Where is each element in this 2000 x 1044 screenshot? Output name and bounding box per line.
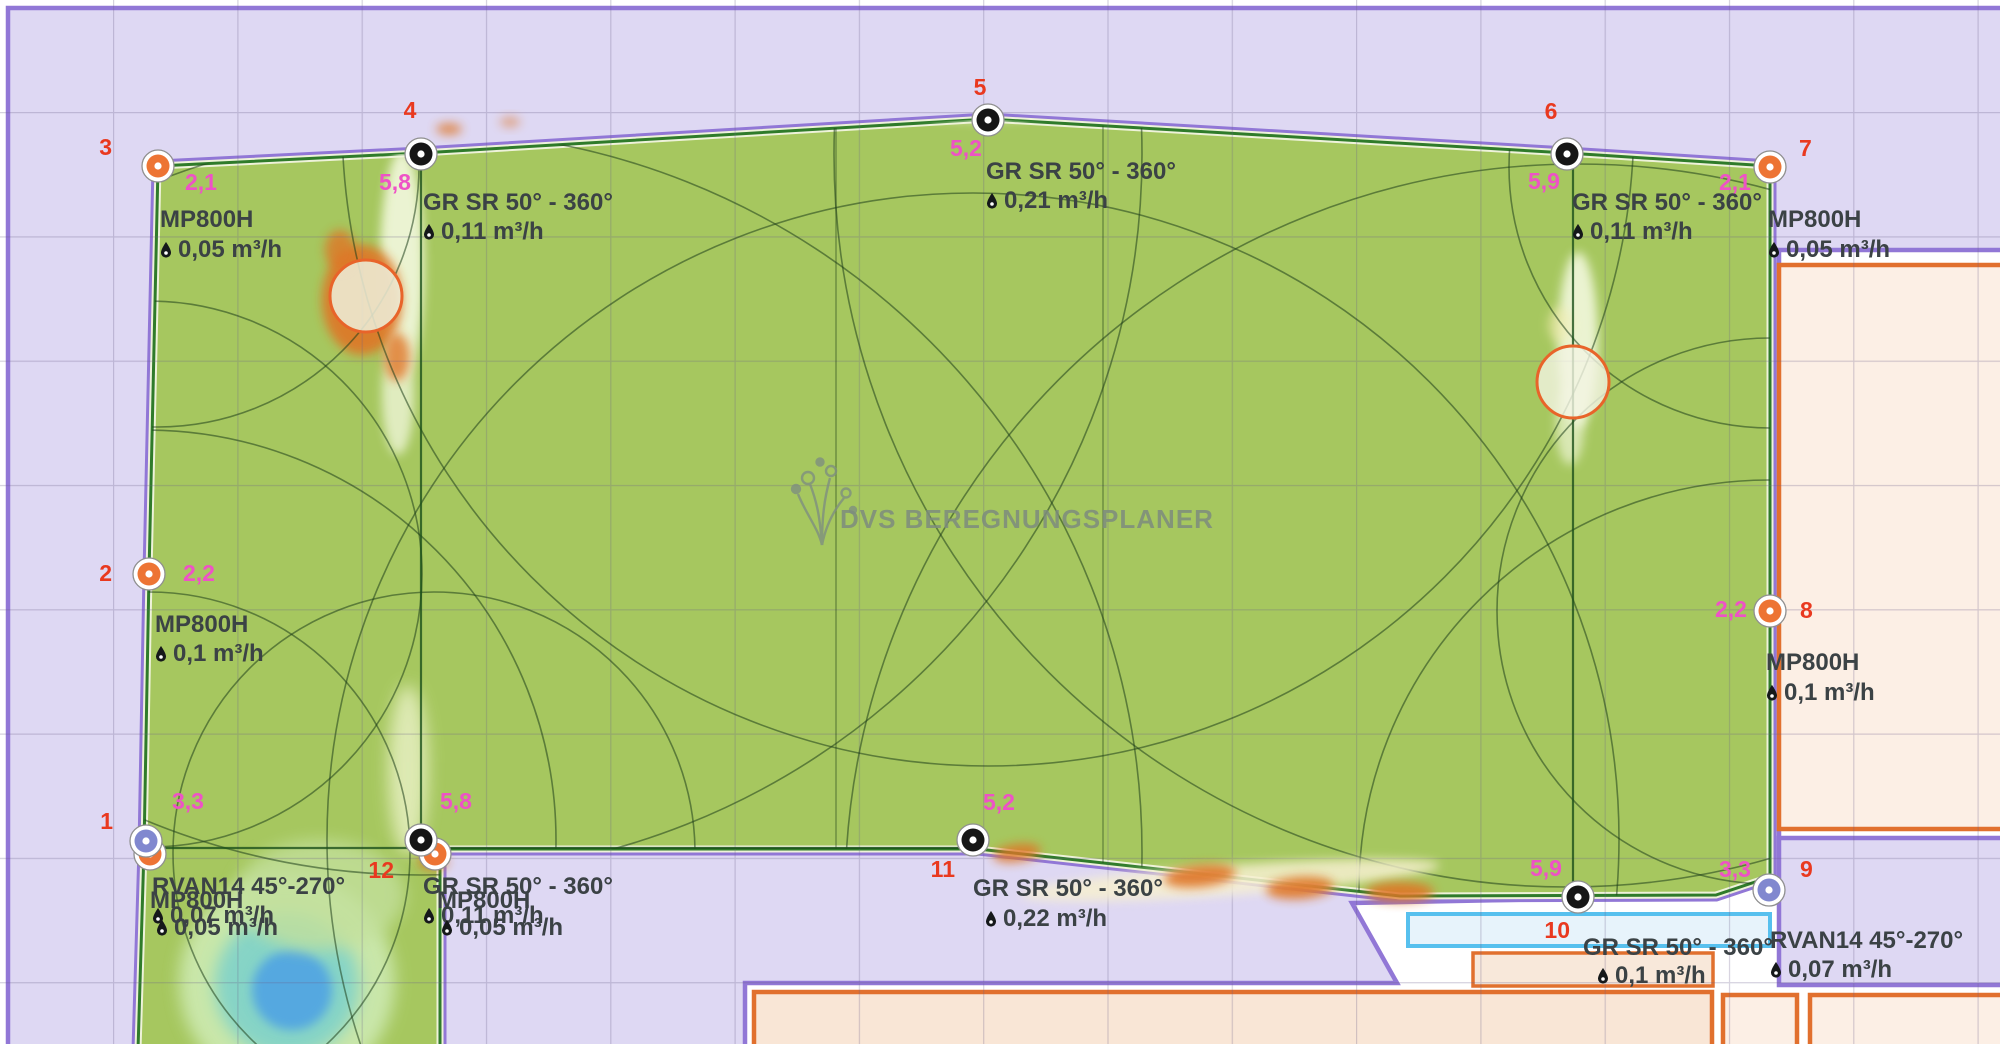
radius-label: 5,2 bbox=[983, 789, 1015, 815]
sprinkler-name: GR SR 50° - 360° bbox=[973, 875, 1163, 902]
radius-label: 2,2 bbox=[183, 560, 215, 586]
sprinkler-name: MP800H bbox=[1768, 206, 1861, 233]
radius-label: 5,2 bbox=[950, 135, 982, 161]
flow-rate: 0,11 m³/h bbox=[441, 218, 544, 245]
flow-rate: 0,11 m³/h bbox=[1590, 218, 1693, 245]
sprinkler-number: 5 bbox=[974, 74, 987, 100]
sprinkler-marker-11[interactable] bbox=[957, 824, 989, 856]
sprinkler-number: 6 bbox=[1545, 98, 1558, 124]
radius-label: 2,1 bbox=[185, 169, 217, 195]
sprinkler-number: 8 bbox=[1800, 597, 1813, 623]
sprinkler-marker-12[interactable] bbox=[405, 824, 437, 856]
sprinkler-name: GR SR 50° - 360° bbox=[986, 158, 1176, 185]
flow-rate: 0,1 m³/h bbox=[1784, 679, 1875, 706]
sprinkler-number: 7 bbox=[1799, 135, 1812, 161]
dry-spot-ring-left bbox=[330, 260, 402, 332]
sprinkler-marker-10[interactable] bbox=[1562, 881, 1594, 913]
radius-label: 3,3 bbox=[172, 788, 204, 814]
sprinkler-marker-7[interactable] bbox=[1754, 151, 1786, 183]
sprinkler-number: 11 bbox=[931, 856, 956, 882]
flow-rate: 0,05 m³/h bbox=[459, 914, 563, 941]
sprinkler-name: RVAN14 45°-270° bbox=[1770, 927, 1963, 954]
sprinkler-marker-3[interactable] bbox=[142, 150, 174, 182]
flow-rate: 0,07 m³/h bbox=[1788, 956, 1892, 983]
sprinkler-number: 12 bbox=[368, 857, 394, 883]
sprinkler-name: MP800H bbox=[155, 611, 248, 638]
flow-rate: 0,22 m³/h bbox=[1003, 905, 1107, 932]
radius-label: 2,2 bbox=[1715, 596, 1747, 622]
sprinkler-name: MP800H bbox=[160, 206, 253, 233]
radius-label: 2,1 bbox=[1719, 169, 1751, 195]
sprinkler-marker-5[interactable] bbox=[972, 104, 1004, 136]
radius-label: 5,9 bbox=[1530, 855, 1562, 881]
sprinkler-marker-8[interactable] bbox=[1754, 595, 1786, 627]
sprinkler-number: 9 bbox=[1800, 856, 1813, 882]
sprinkler-marker-6[interactable] bbox=[1551, 138, 1583, 170]
irrigation-planner-canvas: DVS BEREGNUNGSPLANER bbox=[0, 0, 2000, 1044]
sprinkler-number: 1 bbox=[100, 808, 113, 834]
watermark-text: DVS BEREGNUNGSPLANER bbox=[840, 504, 1214, 534]
flow-rate: 0,05 m³/h bbox=[174, 914, 278, 941]
sprinkler-number: 3 bbox=[99, 134, 112, 160]
sprinkler-name: GR SR 50° - 360° bbox=[1583, 934, 1773, 961]
sprinkler-name: MP800H bbox=[1766, 649, 1859, 676]
radius-label: 5,8 bbox=[440, 788, 472, 814]
flow-rate: 0,05 m³/h bbox=[1786, 236, 1890, 263]
sprinkler-number: 4 bbox=[404, 97, 417, 123]
sprinkler-marker-9[interactable] bbox=[1753, 874, 1785, 906]
plan-drawing: DVS BEREGNUNGSPLANER bbox=[0, 0, 2000, 1044]
flow-rate: 0,1 m³/h bbox=[173, 640, 264, 667]
sprinkler-number: 10 bbox=[1544, 917, 1570, 943]
flow-rate: 0,05 m³/h bbox=[178, 236, 282, 263]
sprinkler-marker-1[interactable] bbox=[130, 825, 162, 857]
flow-rate: 0,1 m³/h bbox=[1615, 962, 1706, 989]
flow-rate: 0,21 m³/h bbox=[1004, 187, 1108, 214]
radius-label: 5,9 bbox=[1528, 168, 1560, 194]
radius-label: 5,8 bbox=[379, 169, 411, 195]
sprinkler-marker-2[interactable] bbox=[133, 558, 165, 590]
sprinkler-name: GR SR 50° - 360° bbox=[423, 189, 613, 216]
radius-label: 3,3 bbox=[1719, 856, 1751, 882]
sprinkler-number: 2 bbox=[99, 560, 112, 586]
dry-spot-ring-right bbox=[1537, 346, 1609, 418]
sprinkler-marker-4[interactable] bbox=[405, 138, 437, 170]
